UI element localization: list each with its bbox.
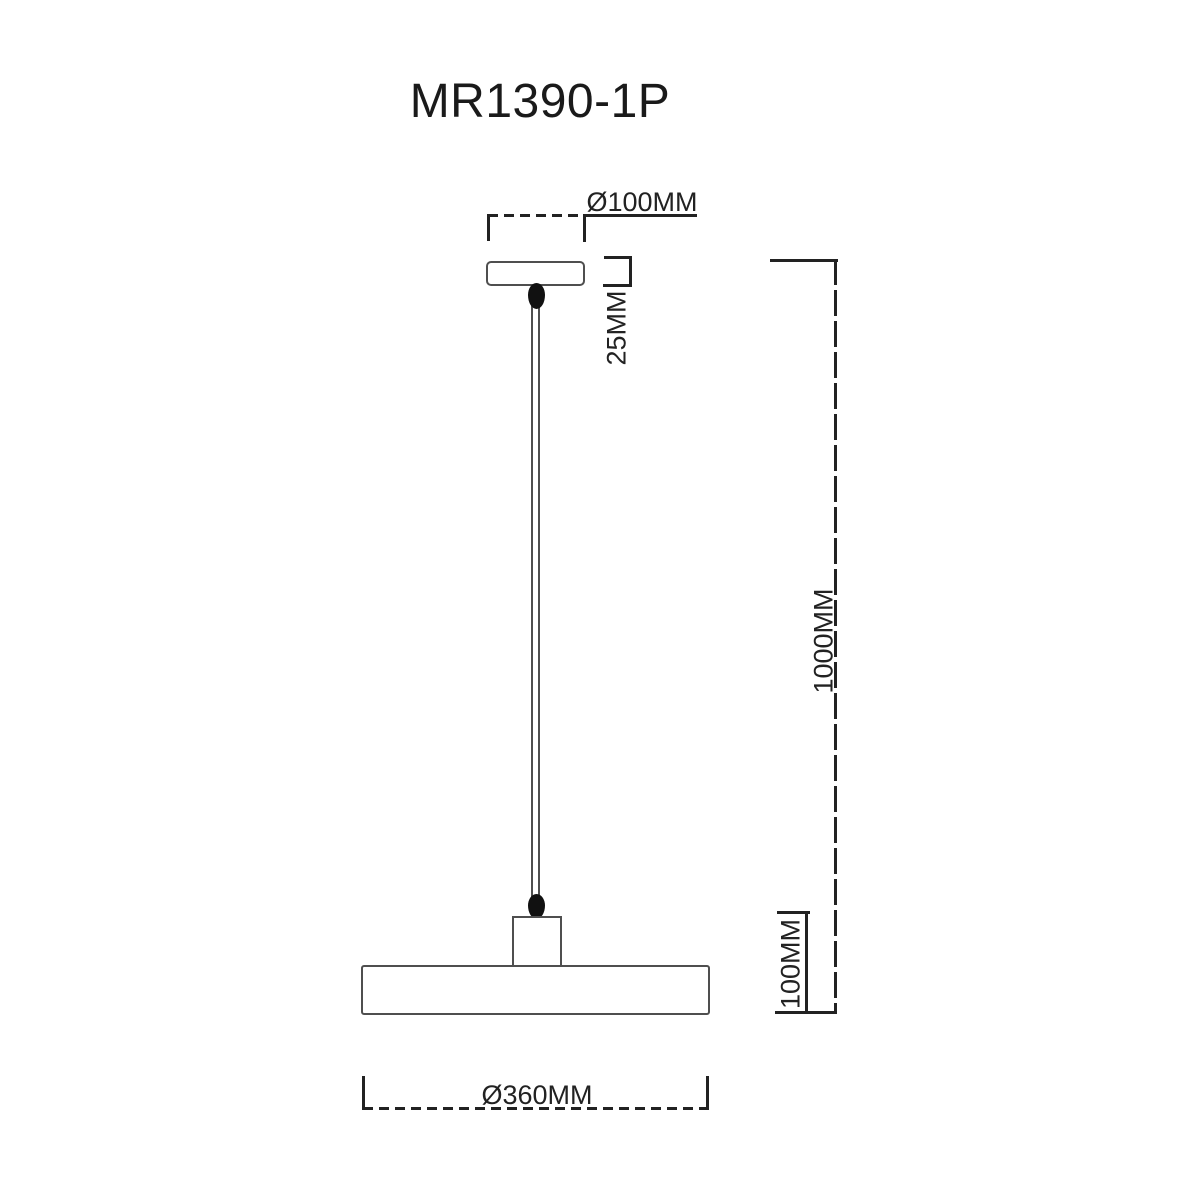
dim-canopy-height-label: 25MM [604, 290, 631, 365]
dim-suspension-length-label: 1000MM [811, 588, 838, 693]
dim-canopy-height-tick-bottom [603, 284, 632, 287]
dim-shade-diameter-tick-left [362, 1076, 365, 1110]
dim-canopy-diameter-tick-right [583, 214, 586, 242]
dim-canopy-diameter-tick-left [487, 214, 490, 241]
lamp-shade [361, 965, 710, 1015]
dim-shade-diameter-tick-right [706, 1076, 709, 1110]
dim-suspension-length-tick-top [770, 259, 838, 262]
dim-canopy-height-line [629, 256, 632, 287]
product-code-title: MR1390-1P [380, 76, 700, 128]
suspension-cable [531, 286, 540, 904]
dim-canopy-diameter-label: Ø100MM [586, 189, 698, 216]
dim-canopy-height-tick-top [604, 256, 632, 259]
dim-canopy-diameter-dashed-line [488, 214, 585, 217]
dim-shade-height-label: 100MM [778, 919, 805, 1009]
dim-shade-diameter-label: Ø360MM [427, 1082, 647, 1109]
dim-shared-tick-bottom [775, 1011, 837, 1014]
technical-drawing-canvas: MR1390-1P Ø100MM 25MM 1000MM 100MM Ø360M… [0, 0, 1200, 1200]
cord-grip-top [528, 283, 545, 309]
socket-mount [512, 916, 562, 967]
